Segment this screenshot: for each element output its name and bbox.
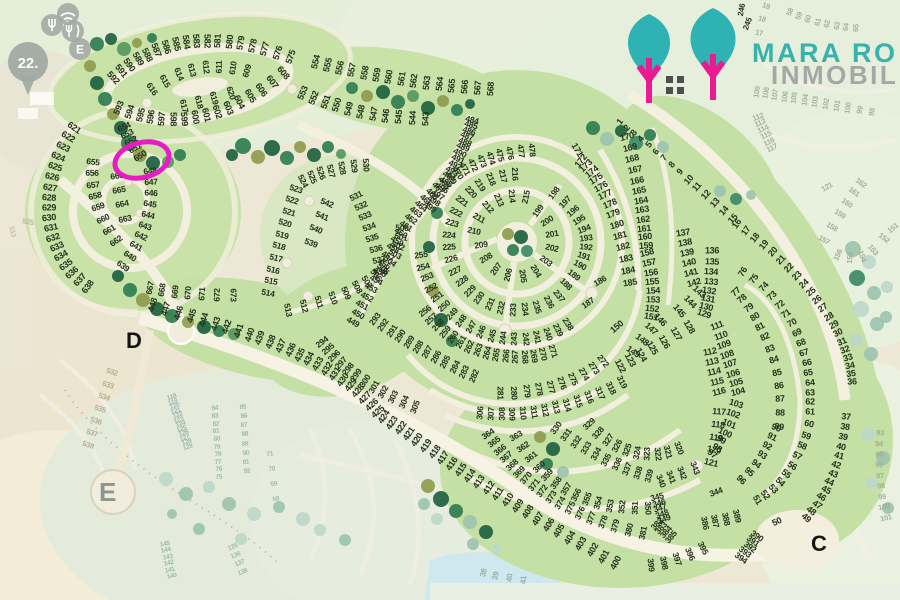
lot-number: 145 bbox=[671, 303, 687, 320]
lot-number: 203 bbox=[538, 254, 554, 269]
lot-number: 318 bbox=[604, 380, 617, 396]
lot-number: 312 bbox=[540, 403, 551, 418]
lot-number: 245 bbox=[742, 17, 754, 31]
lot-number: 50 bbox=[771, 516, 783, 528]
lot-number: 201 bbox=[545, 229, 560, 240]
lot-number: 478 bbox=[527, 143, 537, 157]
lot-number: 128 bbox=[682, 319, 697, 336]
lot-number: 102 bbox=[821, 97, 830, 110]
lot-number: 548 bbox=[355, 104, 367, 120]
lot-number: 534 bbox=[97, 392, 110, 403]
lot-number: 305 bbox=[409, 399, 422, 414]
lot-number: 69 bbox=[270, 482, 277, 489]
lot-number: 389 bbox=[731, 509, 742, 524]
lot-number: 673 bbox=[229, 288, 238, 301]
lot-number: 235 bbox=[531, 299, 543, 314]
lot-number: 210 bbox=[467, 225, 482, 236]
lot-number: 205 bbox=[517, 268, 527, 282]
lot-number: 155 bbox=[645, 277, 660, 287]
lot-number: 68 bbox=[272, 496, 279, 503]
lot-number: 233 bbox=[509, 303, 518, 317]
lot-number: 576 bbox=[272, 44, 285, 60]
lot-number: 104 bbox=[800, 94, 809, 107]
lot-number: 140 bbox=[166, 573, 177, 582]
lot-number: 377 bbox=[585, 510, 598, 525]
lot-number: 646 bbox=[144, 189, 158, 198]
lot-number: 151 bbox=[886, 221, 900, 234]
lot-number: 63 bbox=[805, 388, 815, 397]
lot-number: 281 bbox=[496, 386, 505, 399]
lot-number: 153 bbox=[645, 295, 659, 304]
lot-number: 448 bbox=[147, 297, 160, 313]
lot-number: 192 bbox=[579, 242, 593, 252]
lot-number: 82 bbox=[759, 331, 771, 343]
lot-number: 38 bbox=[479, 568, 489, 578]
lot-number: 159 bbox=[639, 241, 654, 251]
lot-number: 153 bbox=[866, 243, 879, 257]
lot-number: 267 bbox=[511, 350, 520, 363]
lot-number: 41 bbox=[520, 575, 529, 584]
lot-number: 121 bbox=[820, 181, 834, 193]
lot-number: 611 bbox=[215, 60, 224, 73]
lot-number: 671 bbox=[198, 287, 207, 301]
lot-number: 19 bbox=[761, 1, 771, 11]
lot-number: 93 bbox=[876, 429, 884, 437]
lot-number: 152 bbox=[645, 303, 660, 313]
lot-number: 537 bbox=[85, 428, 98, 439]
lot-number: 577 bbox=[259, 41, 271, 57]
lot-number: 95 bbox=[875, 451, 883, 459]
lot-number: 398 bbox=[658, 555, 669, 570]
lot-number: 80 bbox=[213, 436, 220, 443]
lot-number: 397 bbox=[670, 552, 682, 567]
lot-number: 184 bbox=[620, 265, 635, 276]
lot-number: 311 bbox=[529, 405, 539, 419]
lot-number: 517 bbox=[269, 252, 284, 263]
lot-number: 86 bbox=[240, 414, 247, 421]
lot-number: 85 bbox=[239, 405, 246, 412]
lot-number: 39 bbox=[492, 571, 502, 581]
lot-number: 161 bbox=[847, 186, 861, 199]
lot-number: 578 bbox=[247, 38, 259, 54]
lot-number: 98 bbox=[868, 108, 877, 117]
lot-number: 127 bbox=[669, 326, 684, 343]
lot-number: 662 bbox=[108, 234, 124, 249]
lot-number: 152 bbox=[877, 231, 891, 244]
lot-number: 310 bbox=[518, 406, 528, 420]
lot-number: 159 bbox=[833, 208, 847, 221]
lot-number: 379 bbox=[609, 518, 621, 533]
lot-number: 378 bbox=[597, 514, 609, 529]
lot-number: 245 bbox=[486, 328, 498, 343]
lot-number: 388 bbox=[720, 511, 731, 526]
lot-number: 352 bbox=[617, 500, 627, 514]
lot-number: 608 bbox=[275, 65, 291, 82]
lot-number: 162 bbox=[636, 214, 651, 225]
lot-number: 36 bbox=[847, 377, 857, 386]
lot-map: { "brand": {"line1": "MARA RO", "line2":… bbox=[0, 0, 900, 600]
lot-number: 562 bbox=[409, 73, 420, 88]
lot-number: 306 bbox=[475, 406, 485, 420]
lot-number: 213 bbox=[493, 192, 506, 208]
lot-number: 584 bbox=[180, 35, 191, 50]
lot-number: 202 bbox=[545, 243, 560, 254]
lot-number: 597 bbox=[157, 111, 167, 126]
lot-number: 581 bbox=[213, 34, 223, 49]
lot-numbers-layer: 5925915905895885875865855845835825815805… bbox=[0, 0, 900, 600]
lot-number: 513 bbox=[7, 226, 17, 238]
lot-number: 280 bbox=[509, 386, 518, 400]
lot-number: 116 bbox=[711, 386, 726, 398]
lot-number: 532 bbox=[105, 367, 118, 378]
lot-number: 242 bbox=[521, 332, 531, 346]
lot-number: 543 bbox=[421, 112, 430, 126]
lot-number: 563 bbox=[422, 75, 433, 90]
lot-number: 380 bbox=[623, 522, 635, 537]
lot-number: 156 bbox=[832, 248, 844, 262]
lot-number: 216 bbox=[510, 167, 519, 181]
lot-number: 628 bbox=[41, 193, 56, 203]
lot-number: 609 bbox=[241, 63, 253, 78]
lot-number: 540 bbox=[309, 223, 324, 236]
lot-number: 62 bbox=[823, 20, 832, 29]
lot-number: 308 bbox=[497, 407, 506, 420]
lot-number: 583 bbox=[191, 34, 201, 49]
lot-number: 400 bbox=[609, 555, 624, 572]
lot-number: 94 bbox=[875, 440, 883, 448]
lot-number: 75 bbox=[215, 475, 222, 482]
lot-number: 98 bbox=[877, 482, 885, 490]
lot-number: 101 bbox=[832, 99, 841, 112]
lot-number: 185 bbox=[622, 277, 637, 288]
lot-number: 223 bbox=[444, 217, 459, 229]
lot-number: 533 bbox=[101, 379, 114, 390]
lot-number: 556 bbox=[334, 60, 346, 76]
lot-number: 565 bbox=[447, 78, 457, 93]
lot-number: 65 bbox=[803, 368, 814, 378]
lot-number: 84 bbox=[768, 355, 780, 366]
lot-number: 613 bbox=[186, 63, 198, 78]
lot-number: 353 bbox=[604, 498, 615, 513]
lot-number: 542 bbox=[319, 197, 335, 210]
lot-number: 520 bbox=[278, 217, 293, 229]
lot-number: 243 bbox=[510, 332, 519, 346]
lot-number: 150 bbox=[609, 319, 626, 335]
lot-number: 528 bbox=[337, 161, 348, 176]
lot-number: 88 bbox=[241, 432, 248, 439]
lot-number: 516 bbox=[266, 264, 281, 275]
lot-number: 529 bbox=[349, 159, 359, 173]
lot-number: 83 bbox=[764, 343, 776, 355]
lot-number: 664 bbox=[115, 199, 130, 210]
lot-number: 279 bbox=[521, 384, 531, 398]
lot-number: 117 bbox=[712, 407, 726, 417]
lot-number: 155 bbox=[846, 252, 854, 264]
lot-number: 208 bbox=[478, 251, 494, 265]
lot-number: 536 bbox=[89, 416, 102, 427]
lot-number: 99 bbox=[856, 105, 865, 114]
lot-number: 214 bbox=[507, 189, 517, 203]
lot-number: 277 bbox=[545, 379, 557, 394]
lot-number: 614 bbox=[172, 67, 185, 83]
lot-number: 547 bbox=[368, 106, 379, 121]
lot-number: 211 bbox=[471, 211, 486, 225]
lot-number: 395 bbox=[696, 540, 710, 556]
lot-number: 89 bbox=[242, 441, 249, 448]
lot-number: 477 bbox=[516, 144, 526, 158]
lot-number: 444 bbox=[197, 312, 210, 328]
lot-number: 158 bbox=[825, 220, 839, 232]
lot-number: 599 bbox=[179, 111, 189, 126]
lot-number: 99 bbox=[878, 493, 887, 502]
lot-number: 323 bbox=[643, 447, 652, 461]
lot-number: 17 bbox=[754, 29, 763, 38]
lot-number: 665 bbox=[112, 185, 127, 196]
lot-number: 118 bbox=[710, 420, 725, 431]
lot-number: 446 bbox=[173, 305, 186, 321]
lot-number: 207 bbox=[488, 261, 503, 277]
lot-number: 100 bbox=[878, 503, 891, 512]
lot-number: 558 bbox=[359, 65, 371, 81]
lot-number: 445 bbox=[185, 308, 198, 324]
lot-number: 182 bbox=[615, 241, 631, 253]
lot-number: 161 bbox=[637, 223, 652, 233]
lot-number: 616 bbox=[145, 81, 160, 97]
lot-number: 97 bbox=[876, 472, 884, 480]
lot-number: 200 bbox=[540, 214, 556, 228]
lot-number: 612 bbox=[201, 60, 211, 74]
lot-number: 85 bbox=[771, 368, 782, 379]
marker-e: E bbox=[99, 479, 116, 505]
lot-number: 129 bbox=[182, 443, 193, 452]
lot-number: 566 bbox=[460, 80, 470, 95]
lot-number: 121 bbox=[703, 457, 719, 469]
lot-number: 83 bbox=[212, 413, 219, 420]
lot-number: 187 bbox=[580, 296, 596, 311]
lot-number: 86 bbox=[774, 381, 784, 391]
lot-number: 515 bbox=[263, 276, 278, 287]
lot-number: 92 bbox=[243, 469, 250, 476]
lot-number: 514 bbox=[261, 287, 276, 298]
lot-number: 255 bbox=[414, 250, 428, 260]
lot-number: 87 bbox=[775, 394, 785, 403]
lot-number: 215 bbox=[521, 190, 532, 205]
lot-number: 64 bbox=[805, 378, 815, 388]
lot-number: 234 bbox=[520, 302, 530, 316]
lot-number: 656 bbox=[86, 169, 99, 178]
lot-number: 344 bbox=[708, 486, 723, 499]
lot-number: 343 bbox=[689, 460, 702, 475]
lot-number: 354 bbox=[592, 495, 604, 510]
lot-number: 133 bbox=[703, 276, 718, 286]
lot-number: 71 bbox=[266, 451, 273, 458]
lot-number: 396 bbox=[683, 547, 696, 563]
lot-number: 160 bbox=[840, 196, 854, 209]
lot-number: 90 bbox=[242, 450, 249, 457]
lot-number: 663 bbox=[118, 213, 133, 224]
lot-number: 509 bbox=[339, 285, 352, 301]
marker-d: D bbox=[126, 330, 142, 352]
lot-number: 511 bbox=[313, 295, 325, 310]
lot-number: 557 bbox=[346, 62, 358, 78]
lot-number: 351 bbox=[630, 501, 639, 515]
lot-number: 40 bbox=[505, 574, 514, 583]
lot-number: 668 bbox=[157, 283, 167, 297]
lot-number: 91 bbox=[243, 459, 250, 466]
lot-number: 319 bbox=[615, 374, 629, 390]
lot-number: 206 bbox=[503, 267, 514, 282]
lot-number: 232 bbox=[496, 301, 507, 316]
lot-number: 350 bbox=[643, 501, 652, 515]
lot-number: 244 bbox=[498, 331, 508, 345]
lot-number: 136 bbox=[705, 247, 719, 256]
lot-number: 554 bbox=[310, 54, 322, 70]
lot-number: 126 bbox=[657, 333, 672, 350]
lot-number: 212 bbox=[480, 200, 495, 216]
lot-number: 307 bbox=[486, 407, 495, 421]
lot-number: 519 bbox=[275, 229, 290, 241]
lot-number: 598 bbox=[169, 112, 178, 126]
lot-number: 381 bbox=[637, 526, 648, 541]
lot-number: 224 bbox=[442, 230, 456, 240]
lot-number: 669 bbox=[170, 285, 180, 299]
lot-number: 225 bbox=[442, 243, 456, 253]
lot-number: 315 bbox=[572, 393, 584, 408]
lot-number: 324 bbox=[632, 446, 643, 461]
lot-number: 580 bbox=[224, 34, 234, 49]
lot-number: 135 bbox=[705, 257, 719, 266]
lot-number: 154 bbox=[646, 286, 660, 295]
lot-number: 88 bbox=[775, 408, 785, 417]
lot-number: 134 bbox=[704, 267, 719, 277]
lot-number: 564 bbox=[434, 77, 445, 92]
lot-number: 510 bbox=[327, 290, 339, 305]
lot-number: 61 bbox=[805, 407, 815, 417]
lot-number: 657 bbox=[86, 180, 100, 190]
lot-number: 105 bbox=[790, 92, 799, 105]
lot-number: 521 bbox=[281, 206, 296, 218]
marker-c: C bbox=[811, 533, 827, 555]
lot-number: 560 bbox=[384, 70, 395, 85]
lot-number: 541 bbox=[314, 209, 330, 222]
lot-number: 530 bbox=[361, 158, 371, 172]
lot-number: 64 bbox=[842, 23, 850, 32]
lot-number: 399 bbox=[646, 558, 656, 572]
lot-number: 527 bbox=[325, 163, 337, 178]
lot-number: 655 bbox=[86, 157, 100, 167]
lot-number: 62 bbox=[806, 398, 816, 407]
lot-number: 322 bbox=[653, 447, 663, 461]
lot-number: 246 bbox=[737, 3, 747, 17]
lot-number: 546 bbox=[381, 108, 392, 123]
lot-number: 522 bbox=[285, 194, 300, 206]
brand-subtitle: INMOBIL bbox=[771, 62, 898, 88]
lot-number: 186 bbox=[592, 274, 608, 288]
lot-number: 513 bbox=[283, 303, 294, 318]
lot-number: 138 bbox=[237, 568, 249, 578]
lot-number: 525 bbox=[22, 217, 35, 226]
lot-number: 582 bbox=[202, 34, 211, 48]
lot-number: 476 bbox=[505, 146, 516, 161]
lot-number: 103 bbox=[810, 96, 819, 109]
lot-number: 670 bbox=[183, 286, 193, 300]
lot-number: 204 bbox=[529, 263, 543, 279]
lot-number: 314 bbox=[561, 397, 573, 412]
lot-number: 320 bbox=[673, 440, 686, 456]
lot-number: 18 bbox=[758, 14, 767, 23]
lot-number: 309 bbox=[508, 407, 517, 421]
lot-number: 63 bbox=[832, 21, 841, 30]
lot-number: 84 bbox=[211, 406, 218, 413]
lot-number: 559 bbox=[371, 67, 382, 83]
lot-number: 241 bbox=[531, 330, 542, 345]
lot-number: 154 bbox=[856, 249, 867, 263]
lot-number: 568 bbox=[486, 82, 496, 97]
lot-number: 70 bbox=[268, 467, 275, 474]
lot-number: 387 bbox=[710, 513, 721, 528]
lot-number: 667 bbox=[145, 281, 156, 296]
lot-number: 117 bbox=[765, 142, 778, 154]
lot-number: 512 bbox=[299, 299, 310, 314]
lot-number: 87 bbox=[241, 423, 248, 430]
lot-number: 561 bbox=[396, 72, 407, 87]
lot-number: 107 bbox=[770, 89, 779, 102]
lot-number: 313 bbox=[550, 400, 561, 415]
lot-number: 157 bbox=[817, 234, 831, 246]
lot-number: 610 bbox=[228, 61, 238, 75]
lot-number: 567 bbox=[473, 81, 483, 96]
lot-number: 217 bbox=[497, 168, 508, 183]
lot-number: 672 bbox=[213, 288, 222, 302]
lot-number: 278 bbox=[534, 382, 545, 397]
lot-number: 579 bbox=[236, 36, 247, 51]
lot-number: 545 bbox=[394, 110, 404, 125]
lot-number: 209 bbox=[474, 240, 488, 250]
lot-number: 66 bbox=[801, 357, 812, 368]
lot-number: 183 bbox=[618, 253, 634, 265]
lot-number: 555 bbox=[322, 57, 334, 73]
lot-number: 535 bbox=[93, 404, 106, 415]
lot-number: 544 bbox=[408, 111, 418, 126]
lot-number: 549 bbox=[343, 101, 355, 117]
lot-number: 96 bbox=[875, 461, 883, 469]
lot-number: 447 bbox=[160, 301, 173, 317]
lot-number: 575 bbox=[284, 49, 297, 65]
lot-number: 156 bbox=[643, 267, 658, 278]
lot-number: 518 bbox=[271, 240, 286, 252]
lot-number: 65 bbox=[852, 24, 860, 32]
lot-number: 615 bbox=[158, 73, 172, 89]
lot-number: 100 bbox=[844, 101, 853, 114]
lot-number: 601 bbox=[200, 107, 212, 123]
lot-number: 60 bbox=[803, 418, 814, 429]
lot-number: 101 bbox=[880, 513, 893, 523]
lot-number: 164 bbox=[633, 195, 648, 206]
lot-number: 600 bbox=[189, 110, 200, 125]
lot-number: 119 bbox=[709, 432, 724, 443]
lot-number: 538 bbox=[81, 440, 94, 451]
lot-number: 539 bbox=[303, 237, 318, 250]
